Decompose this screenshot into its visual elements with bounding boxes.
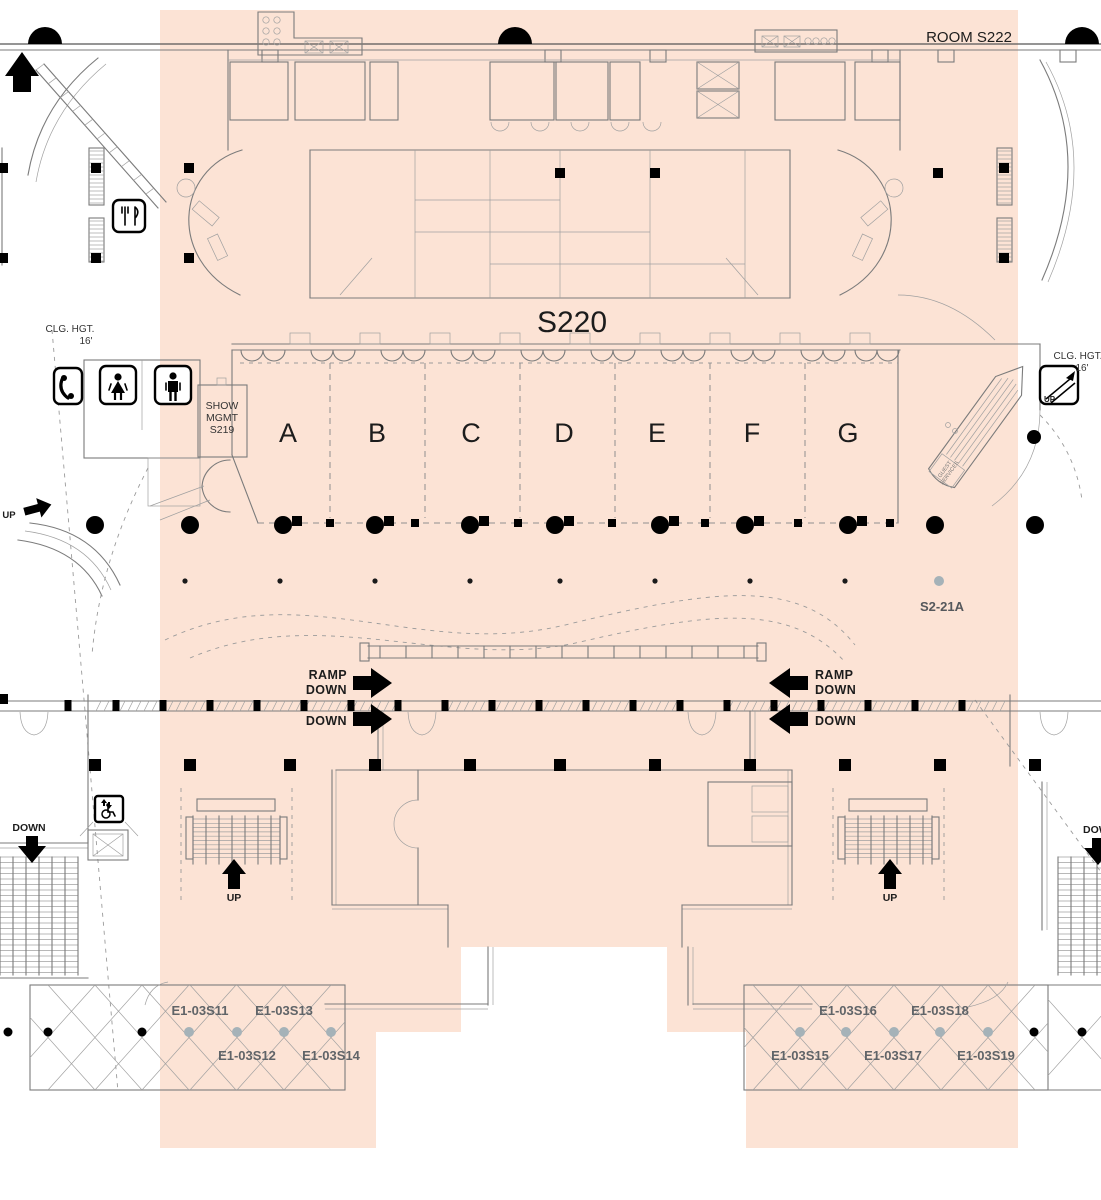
ramp-down-label-right: DOWN: [815, 683, 856, 697]
utility-label: E1-03S16: [819, 1003, 877, 1018]
utility-label: E1-03S17: [864, 1048, 922, 1063]
utility-label: E1-03S13: [255, 1003, 313, 1018]
hall-s220-label: S220: [537, 306, 607, 339]
s2-21a-label: S2-21A: [920, 599, 965, 614]
section-e-label: E: [648, 418, 666, 448]
up-arrow-leftedge: [22, 495, 54, 522]
show-mgmt-label: MGMT: [206, 412, 239, 424]
utility-label: E1-03S12: [218, 1048, 276, 1063]
ceiling-height-left: CLG. HGT.: [46, 324, 95, 335]
up-label-escalator-left: UP: [227, 892, 242, 904]
utility-label: E1-03S11: [171, 1003, 228, 1018]
food-icon: [113, 200, 145, 232]
utility-label: E1-03S18: [911, 1003, 969, 1018]
down-arrow-stairs-left: [18, 836, 46, 863]
section-a-label: A: [279, 418, 297, 448]
ceiling-height-right-value: 16': [1075, 363, 1088, 374]
phone-icon: [54, 368, 82, 404]
section-d-label: D: [554, 418, 574, 448]
show-mgmt-label: S219: [210, 424, 235, 436]
escalator-up-icon: UP: [1040, 366, 1078, 404]
column: [28, 27, 62, 44]
floor-plan-canvas: GUEST SERVICES: [0, 0, 1101, 1200]
column: [1065, 27, 1099, 44]
ramp-down-label-left: DOWN: [306, 683, 347, 697]
column: [1027, 430, 1041, 444]
accessible-elevator-icon: [95, 796, 123, 822]
coffer-pattern-edge: [1035, 985, 1101, 1090]
section-c-label: C: [461, 418, 481, 448]
down-label-left: DOWN: [306, 714, 347, 728]
up-label-leftedge: UP: [2, 510, 16, 521]
up-arrow-topleft: [5, 52, 39, 92]
down-label-stairs-left: DOWN: [12, 822, 45, 834]
ramp-left: [18, 523, 120, 596]
stairs-left: [0, 857, 78, 975]
utility-label: E1-03S15: [771, 1048, 829, 1063]
escalator-up-label: UP: [1044, 395, 1056, 404]
ramp-label-right: RAMP: [815, 668, 853, 682]
stairs-right: [1058, 857, 1101, 975]
diagonal-escalator-topleft: [36, 64, 166, 208]
show-mgmt-label: SHOW: [206, 400, 239, 412]
up-label-escalator-right: UP: [883, 892, 898, 904]
mens-restroom-icon: [155, 366, 191, 404]
room-s222-label: ROOM S222: [926, 29, 1012, 46]
utility-label: E1-03S14: [302, 1048, 361, 1063]
section-f-label: F: [744, 418, 761, 448]
left-core: [0, 822, 138, 978]
ceiling-height-left-value: 16': [79, 336, 92, 347]
right-core: [1042, 782, 1047, 930]
utility-label: E1-03S19: [957, 1048, 1015, 1063]
womens-restroom-icon: [100, 366, 136, 404]
floor-plan: GUEST SERVICES: [0, 0, 1101, 1200]
down-label-stairs-right: DOWN: [1083, 824, 1101, 836]
section-g-label: G: [837, 418, 858, 448]
down-label-right: DOWN: [815, 714, 856, 728]
ramp-label-left: RAMP: [309, 668, 347, 682]
ceiling-height-right: CLG. HGT.: [1054, 351, 1101, 362]
section-b-label: B: [368, 418, 386, 448]
